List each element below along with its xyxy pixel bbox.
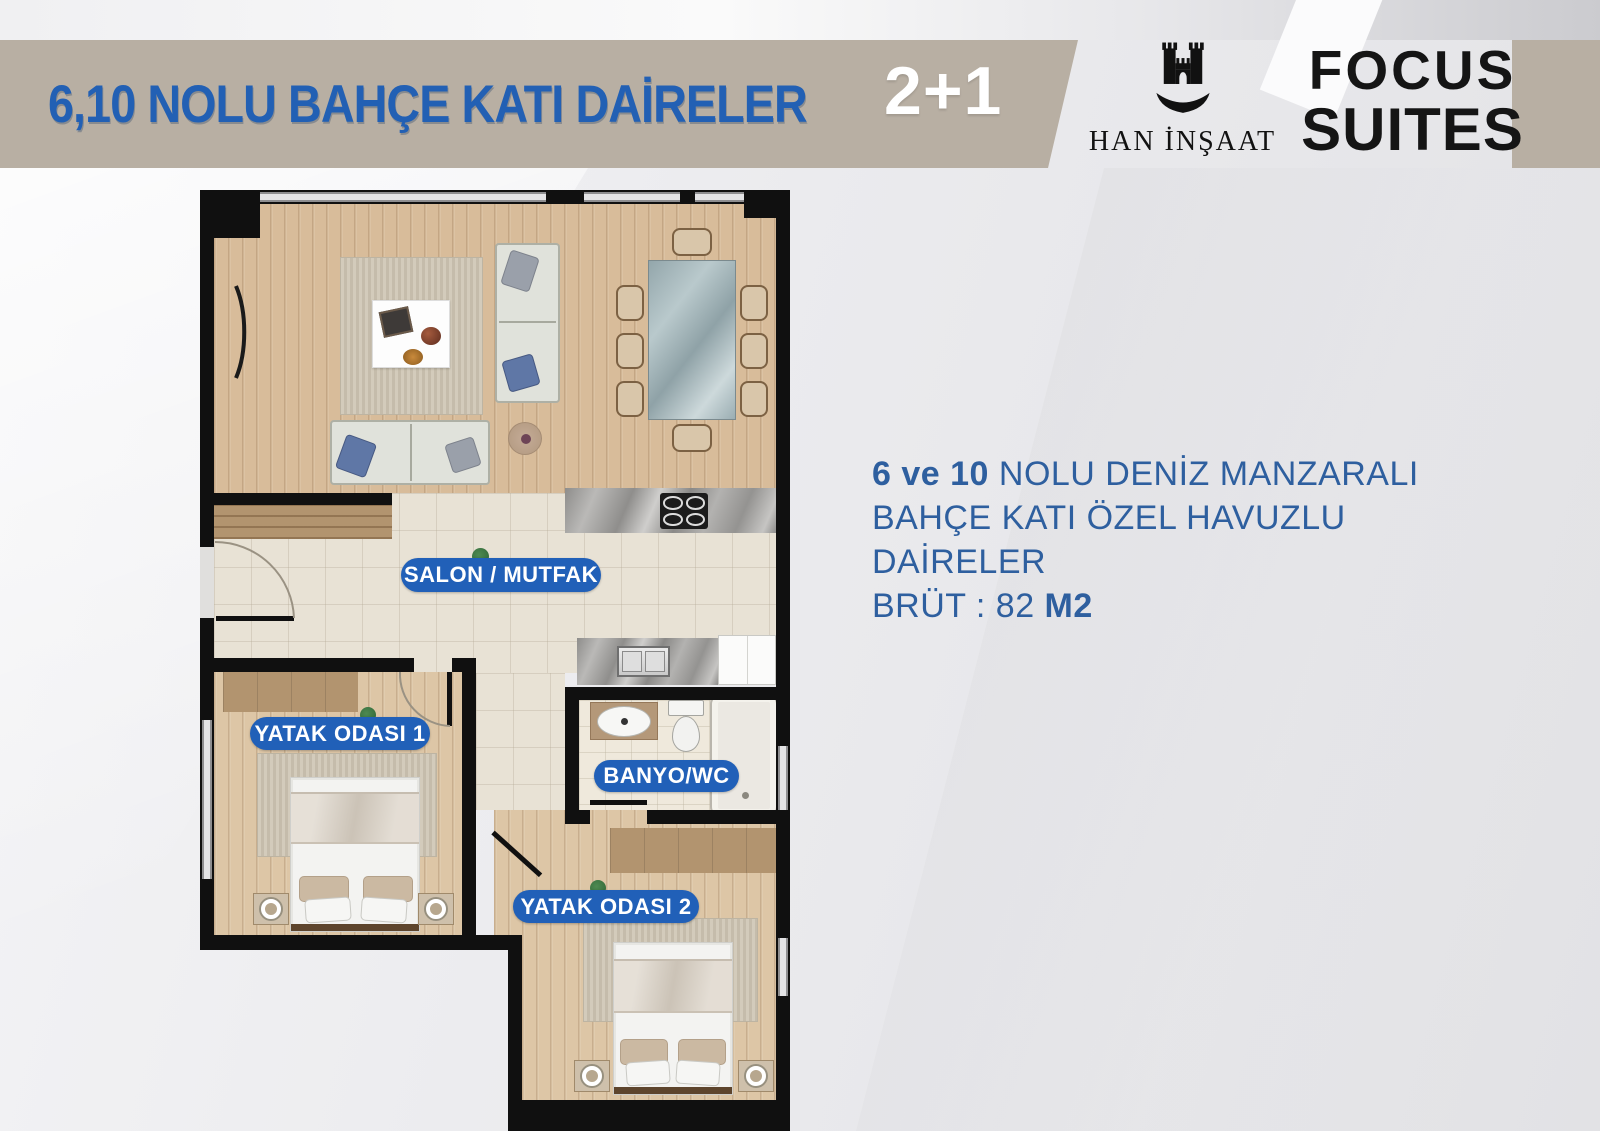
room-label-yatak-odasi-2: YATAK ODASI 2	[513, 890, 699, 923]
bathroom-door-leaf	[590, 800, 647, 805]
sofa-horizontal	[330, 420, 490, 485]
wall-bedroom1-bottom	[200, 935, 522, 950]
stove-burner	[663, 513, 683, 527]
brand-name: HAN İNŞAAT	[1085, 126, 1280, 158]
bedroom1-wardrobe	[223, 672, 358, 712]
sofa-cushion-gray	[444, 436, 482, 474]
description-block: 6 ve 10 NOLU DENİZ MANZARALI BAHÇE KATI …	[872, 452, 1512, 628]
dining-chair	[616, 333, 644, 369]
sofa-cushion-blue	[501, 353, 541, 393]
sofa-vertical	[495, 243, 560, 403]
dining-chair	[740, 333, 768, 369]
floor-plan: SALON / MUTFAK YATAK ODASI 1 BANYO/WC YA…	[200, 190, 790, 1131]
page-title: 6,10 NOLU BAHÇE KATI DAİRELER	[48, 74, 807, 135]
coffee-table-teapot	[421, 327, 441, 345]
castle-icon	[1146, 38, 1220, 124]
bedroom1-bed	[290, 777, 420, 932]
entry-stub-wall	[214, 493, 392, 505]
nightstand	[253, 893, 289, 925]
window-top-2	[584, 192, 680, 202]
dining-chair	[672, 424, 712, 452]
nightstand-speaker	[426, 899, 446, 919]
flyer-canvas: 6,10 NOLU BAHÇE KATI DAİRELER 2+1 HAN İN…	[0, 0, 1600, 1131]
room-label-yatak-odasi-1: YATAK ODASI 1	[250, 717, 430, 750]
dining-table	[648, 260, 736, 420]
stove-burner	[686, 496, 706, 510]
shower-drain	[742, 792, 749, 799]
window-right-bedroom2	[778, 938, 788, 996]
nightstand-speaker	[261, 899, 281, 919]
sofa-seam	[410, 424, 412, 481]
nightstand	[574, 1060, 610, 1092]
window-top-3	[695, 192, 744, 202]
background-right-diagonal	[800, 168, 1600, 1131]
coffee-table	[372, 300, 450, 368]
entry-closet	[214, 505, 392, 539]
bathroom-vanity	[590, 702, 658, 740]
stove-burner	[686, 513, 706, 527]
wall-bedroom1-right	[462, 658, 476, 950]
bed-blanket	[291, 792, 419, 844]
sink-basin	[645, 651, 665, 672]
project-name-line1: FOCUS	[1295, 40, 1530, 100]
wall-bathroom-left	[565, 687, 579, 810]
coffee-table-tray	[379, 306, 414, 338]
entry-door-opening	[200, 547, 214, 618]
stove	[660, 493, 708, 529]
wall-bedroom1-top	[214, 658, 414, 672]
toilet-tank	[668, 700, 704, 716]
dining-chair	[740, 285, 768, 321]
entry-door-leaf	[216, 616, 294, 621]
dining-chair	[616, 285, 644, 321]
bed-pillow	[360, 896, 408, 923]
wall-bathroom-top	[565, 687, 790, 700]
window-top-1	[260, 192, 546, 202]
bedroom2-wardrobe	[610, 828, 776, 873]
description-line-3: BRÜT : 82 M2	[872, 584, 1512, 628]
washbasin-drain	[621, 718, 628, 725]
bed-footboard	[614, 1087, 732, 1094]
window-left-bedroom1	[202, 720, 212, 879]
kitchen-cabinet	[718, 635, 776, 685]
sofa-cushion-blue	[335, 434, 377, 479]
unit-type-badge: 2+1	[884, 52, 1002, 130]
bed-footboard	[291, 924, 419, 931]
sofa-seam	[499, 321, 556, 323]
nightstand-speaker	[746, 1066, 766, 1086]
wall-bedroom1-top-pier	[452, 658, 462, 672]
round-rug	[508, 422, 542, 455]
toilet	[672, 716, 700, 752]
project-name: FOCUS SUITES	[1295, 40, 1530, 160]
nightstand-speaker	[582, 1066, 602, 1086]
dining-chair	[616, 381, 644, 417]
bed-pillow	[625, 1059, 671, 1086]
round-rug-decor	[521, 434, 531, 444]
dining-chair	[740, 381, 768, 417]
nightstand	[738, 1060, 774, 1092]
dining-chair	[672, 228, 712, 256]
description-line-1: 6 ve 10 NOLU DENİZ MANZARALI	[872, 452, 1512, 496]
bed-pillow	[675, 1059, 721, 1086]
sofa-cushion-gray	[500, 249, 540, 293]
project-name-line2: SUITES	[1295, 100, 1530, 160]
window-right-bathroom	[778, 746, 788, 810]
description-line-2: BAHÇE KATI ÖZEL HAVUZLU DAİRELER	[872, 496, 1512, 584]
wall-bathroom-bottom-b	[647, 810, 790, 824]
wall-bathroom-bottom-a	[565, 810, 590, 824]
bed-blanket	[614, 959, 732, 1013]
kitchen-sink	[617, 646, 670, 677]
bedroom2-bed	[613, 942, 733, 1095]
corridor-floor	[476, 673, 565, 810]
coffee-table-bowl	[403, 349, 423, 365]
room-label-salon-mutfak: SALON / MUTFAK	[401, 558, 601, 592]
shower-tray	[712, 696, 776, 815]
sink-basin	[622, 651, 642, 672]
stove-burner	[663, 496, 683, 510]
nightstand	[418, 893, 454, 925]
wall-bedroom2-bottom	[508, 1100, 790, 1131]
cabinet-divider	[747, 636, 748, 684]
room-label-banyo-wc: BANYO/WC	[594, 760, 739, 792]
bedroom1-door-leaf	[447, 672, 452, 726]
bed-pillow	[304, 896, 352, 923]
han-insaat-logo: HAN İNŞAAT	[1085, 38, 1280, 158]
